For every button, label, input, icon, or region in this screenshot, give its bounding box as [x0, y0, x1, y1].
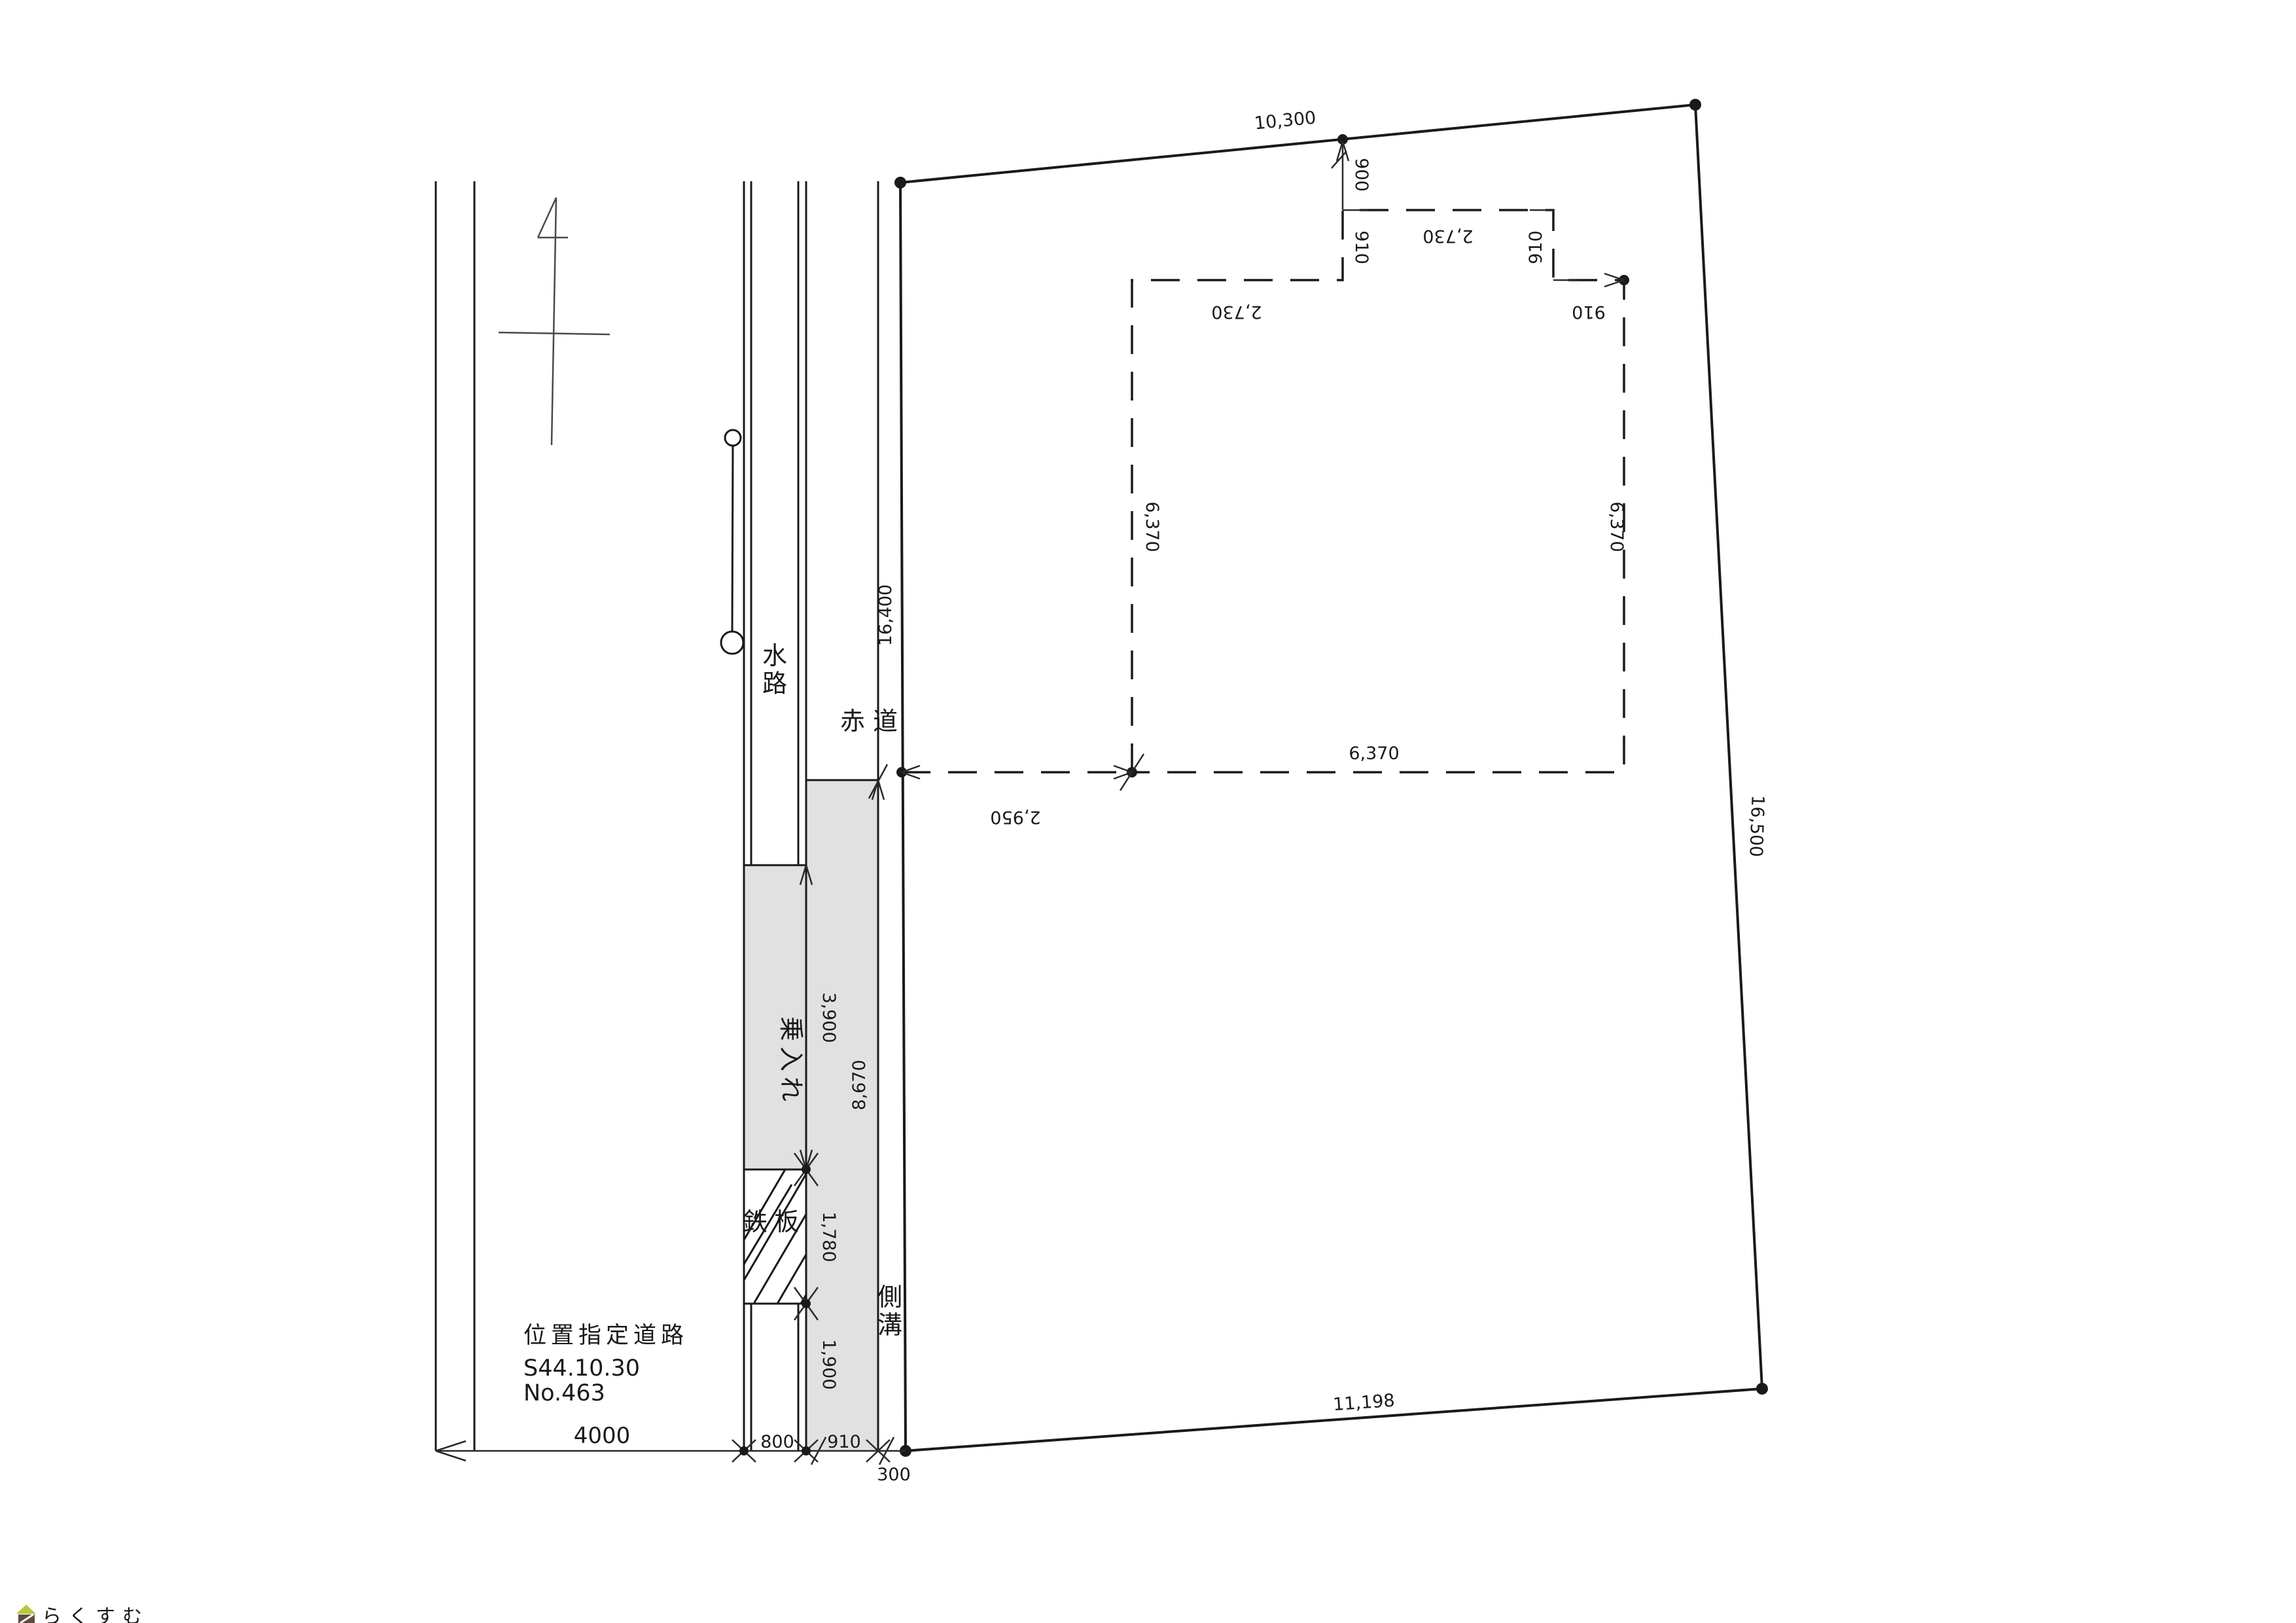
label-waterway: 水路 [762, 641, 787, 698]
dim-driveway-3900: 3,900 [819, 992, 839, 1043]
label-red-road: 赤道 [840, 707, 906, 736]
site-boundary [900, 105, 1762, 1451]
dim-building-south: 6,370 [1349, 743, 1399, 764]
dim-top-910: 910 [1572, 302, 1606, 322]
dim-ditch-300: 300 [877, 1465, 911, 1485]
dim-bottom-width: 11,198 [1332, 1391, 1395, 1416]
dim-porch-910-right: 910 [1526, 230, 1546, 264]
label-side-gutter: 側溝 [877, 1283, 902, 1340]
site-plan-drawing: 10,300 900 910 2,730 910 2,730 910 6,370… [0, 0, 2296, 1623]
north-arrow-icon [499, 198, 610, 445]
dimension-lines [436, 141, 1624, 1465]
dim-gutter-8670: 8,670 [849, 1060, 870, 1110]
dim-top-width: 10,300 [1254, 108, 1317, 134]
utility-pole-symbols [721, 430, 743, 654]
dim-right-height: 16,500 [1745, 795, 1767, 858]
dim-left-height: 16,400 [875, 584, 896, 646]
building-footprint [902, 210, 1624, 772]
boundary-corner-dots [894, 99, 1768, 1457]
dim-porch-910-left: 910 [1351, 230, 1371, 264]
house-icon [16, 1605, 36, 1623]
dim-porch-2730: 2,730 [1422, 226, 1473, 246]
building-corner-dots [896, 275, 1629, 777]
dim-building-east: 6,370 [1606, 501, 1627, 552]
road-note-line3: No.463 [523, 1380, 605, 1406]
watermark: らくすむ [16, 1605, 149, 1623]
road-note-line2: S44.10.30 [523, 1355, 640, 1382]
dim-gutter-910: 910 [827, 1432, 861, 1452]
site-plan-page: 10,300 900 910 2,730 910 2,730 910 6,370… [0, 0, 2296, 1623]
gutter-paved-strip [806, 780, 878, 1451]
dim-building-west: 6,370 [1142, 501, 1162, 552]
label-steel-plate: 鉄板 [743, 1207, 805, 1236]
dim-road-4000: 4000 [574, 1423, 631, 1449]
label-driveway: 乗入れ [777, 1016, 805, 1107]
dim-waterway-800: 800 [760, 1432, 794, 1452]
road-note-line1: 位置指定道路 [523, 1323, 688, 1349]
watermark-text: らくすむ [42, 1605, 149, 1623]
dim-below-1900: 1,900 [819, 1339, 839, 1389]
dim-offset-900: 900 [1351, 158, 1371, 192]
dim-offset-2950: 2,950 [990, 807, 1040, 827]
dim-plate-1780: 1,780 [819, 1211, 839, 1262]
dim-top-2730: 2,730 [1211, 302, 1262, 322]
